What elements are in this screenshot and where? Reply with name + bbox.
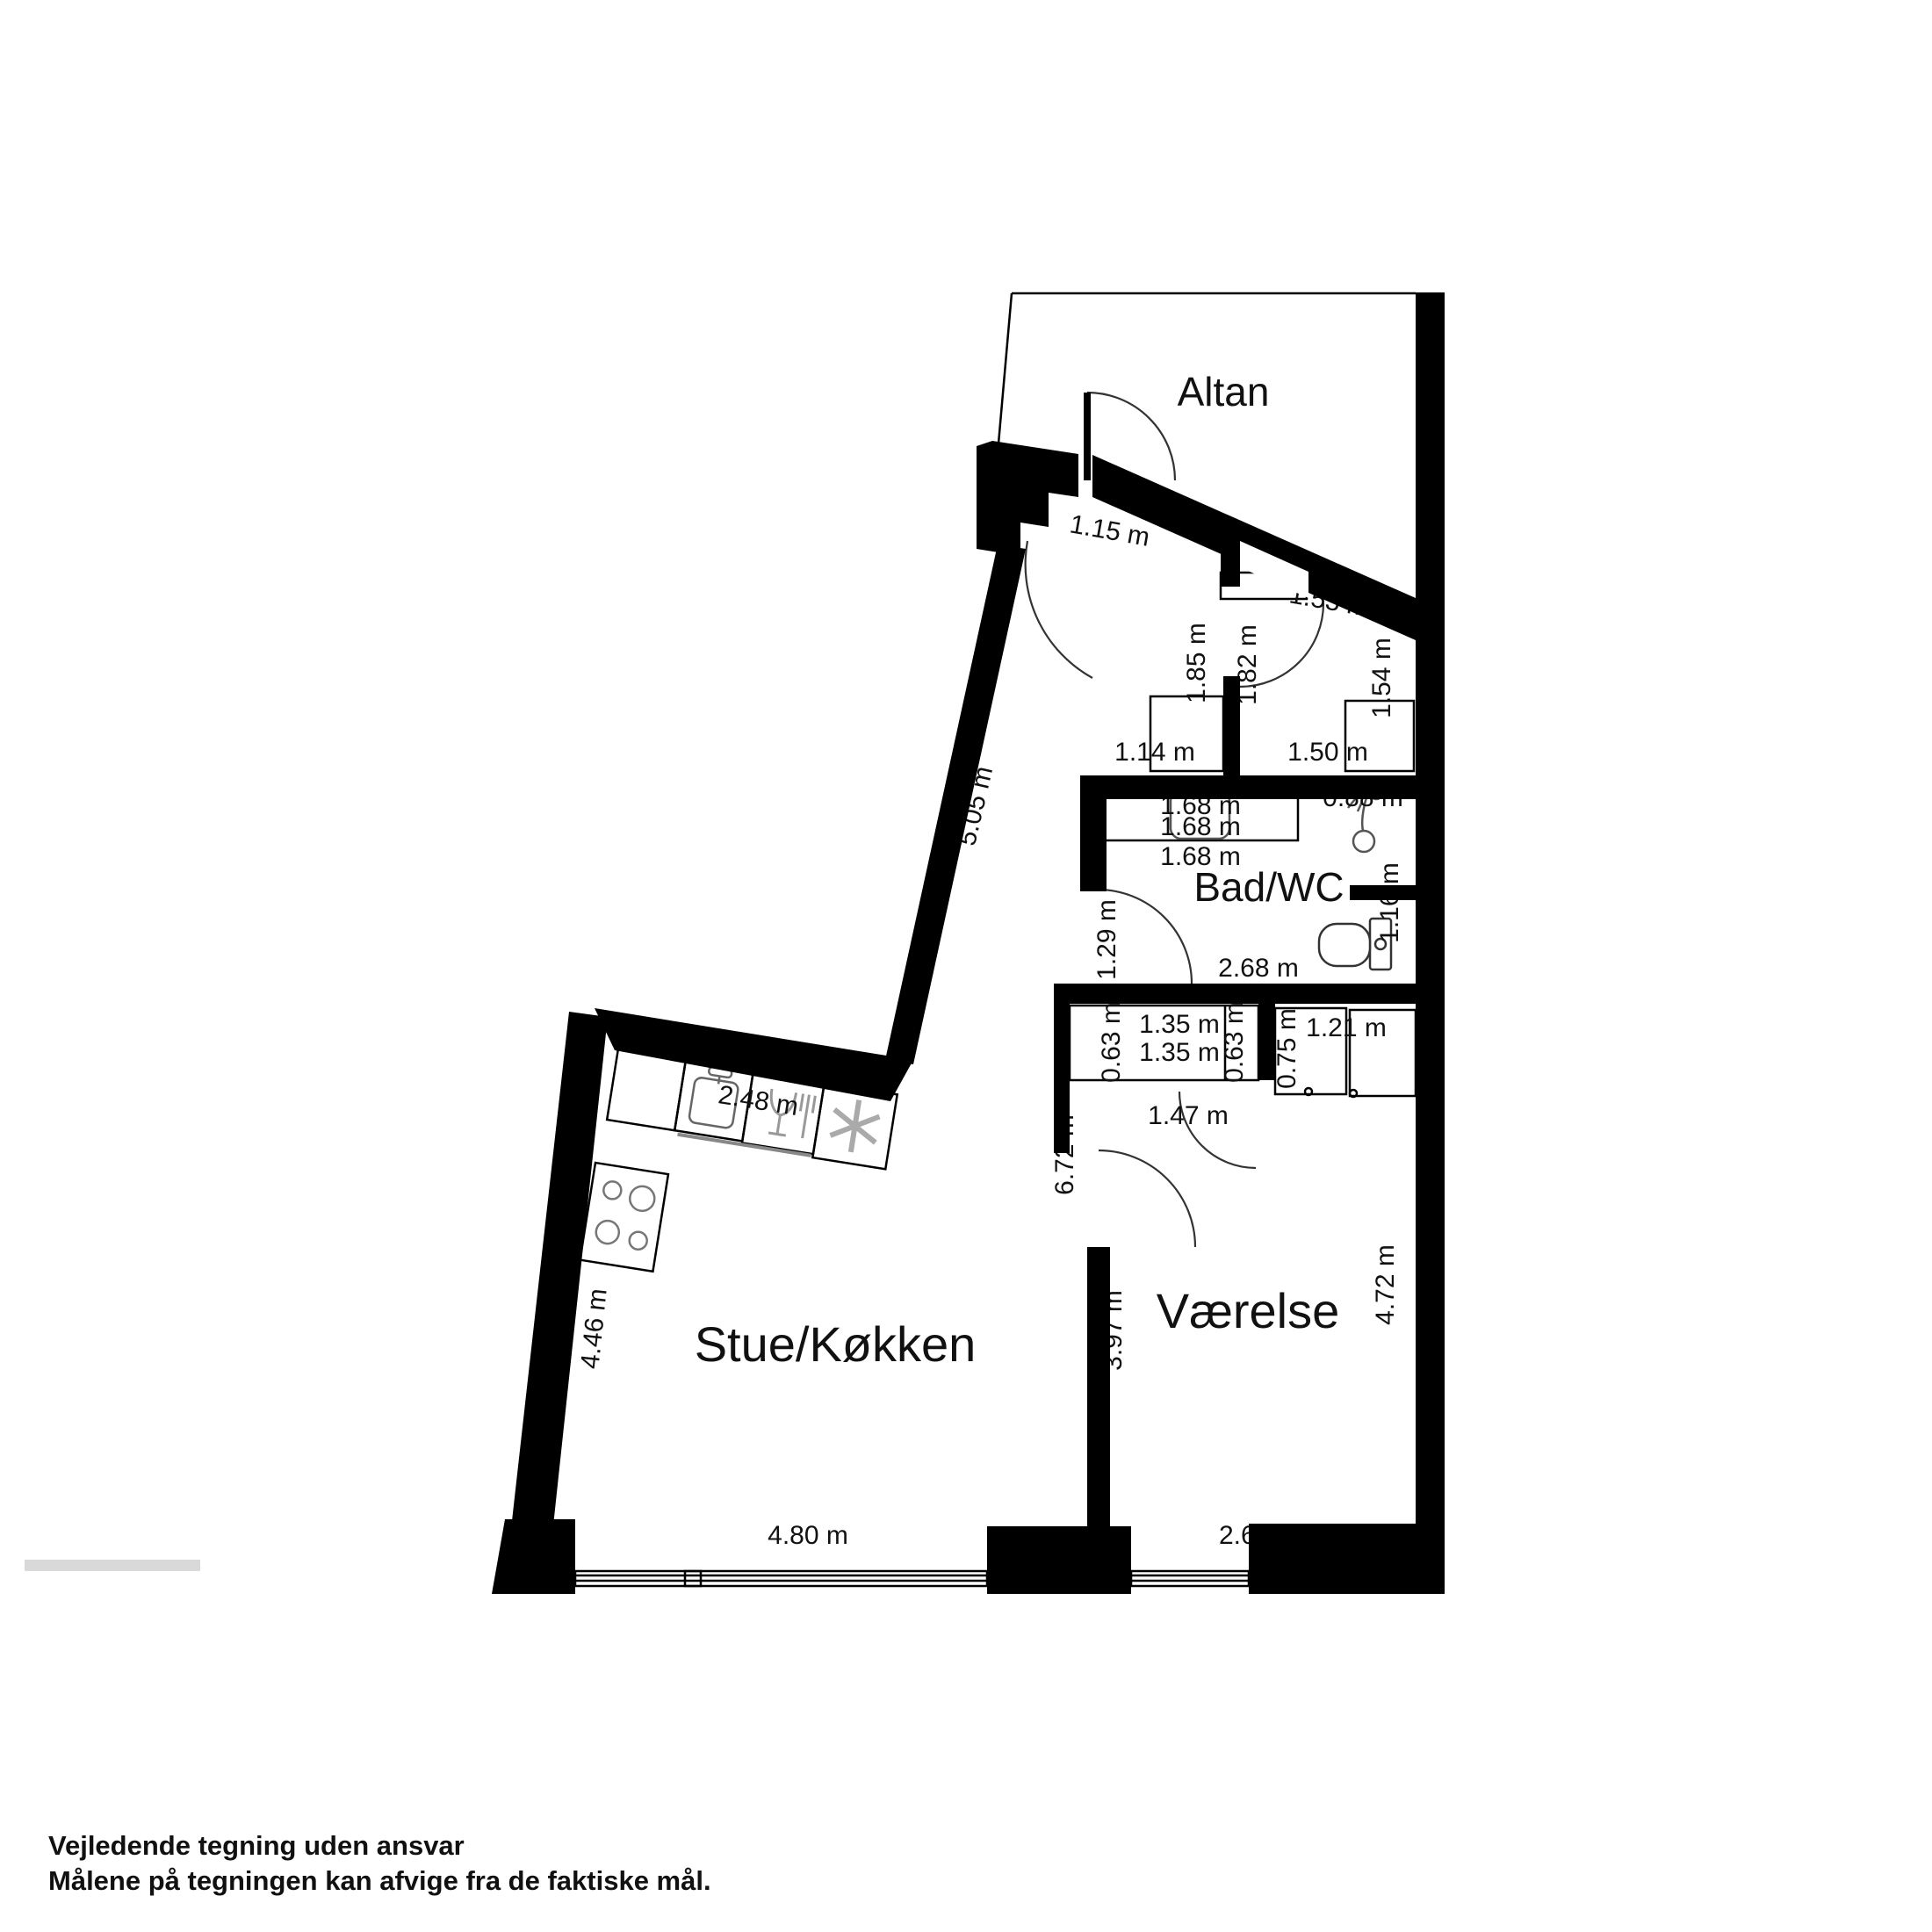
measurement-label: 4.72 m <box>1371 1244 1400 1325</box>
measurement-label: 0.63 m <box>1220 1002 1249 1083</box>
wall-bath-stub <box>1350 885 1416 900</box>
measurement-label: 1.29 m <box>1092 899 1121 980</box>
floor-plan-page: 1.15 m1.05 m1.53 m1.85 m1.82 m1.54 m1.14… <box>0 0 1932 1932</box>
wall-wardrobe-stub <box>1258 1001 1275 1080</box>
wall-niche-stub <box>1221 543 1240 587</box>
measurement-label: 1.47 m <box>1148 1101 1229 1130</box>
scale-bar <box>25 1560 200 1571</box>
measurement-label: 1.50 m <box>1287 738 1368 767</box>
room-label: Stue/Køkken <box>695 1316 977 1372</box>
measurement-label: 2.68 m <box>1218 954 1299 983</box>
measurement-label: 1.14 m <box>1114 738 1195 767</box>
measurement-label: 0.75 m <box>1272 1008 1301 1089</box>
room-label: Bad/WC <box>1193 864 1344 910</box>
wall-right <box>1416 292 1445 1531</box>
wall-closet-stub <box>1223 676 1240 775</box>
measurement-label: 1.68 m <box>1160 812 1241 841</box>
room-label: Værelse <box>1157 1283 1340 1338</box>
measurement-label: 1.85 m <box>1182 623 1211 703</box>
pier-bottom-left <box>492 1519 575 1594</box>
wall-bath-top <box>1080 775 1416 799</box>
wall-wardrobe-left <box>1054 1004 1070 1153</box>
balcony-door-leaf <box>1084 393 1091 480</box>
measurement-label: 1.16 m <box>1375 862 1404 943</box>
measurement-label: 1.54 m <box>1367 638 1396 718</box>
floor-plan-drawing: 1.15 m1.05 m1.53 m1.85 m1.82 m1.54 m1.14… <box>0 0 1932 1932</box>
wall-bath-bottom <box>1054 984 1445 1004</box>
measurement-label: 1.35 m <box>1139 1038 1220 1067</box>
background <box>0 0 1932 1932</box>
measurement-label: 1.21 m <box>1306 1013 1387 1042</box>
wall-room-divider <box>1087 1247 1110 1532</box>
pier-bottom-right <box>1249 1524 1445 1594</box>
disclaimer-line-1: Vejledende tegning uden ansvar <box>48 1830 465 1861</box>
measurement-label: 4.80 m <box>768 1521 848 1550</box>
room-label: Altan <box>1178 369 1270 415</box>
pier-bottom-center <box>987 1526 1131 1594</box>
measurement-label: 0.63 m <box>1097 1002 1126 1083</box>
disclaimer-line-2: Målene på tegningen kan afvige fra de fa… <box>48 1865 711 1896</box>
wall-bath-left <box>1080 775 1107 891</box>
measurement-label: 1.35 m <box>1139 1010 1220 1039</box>
